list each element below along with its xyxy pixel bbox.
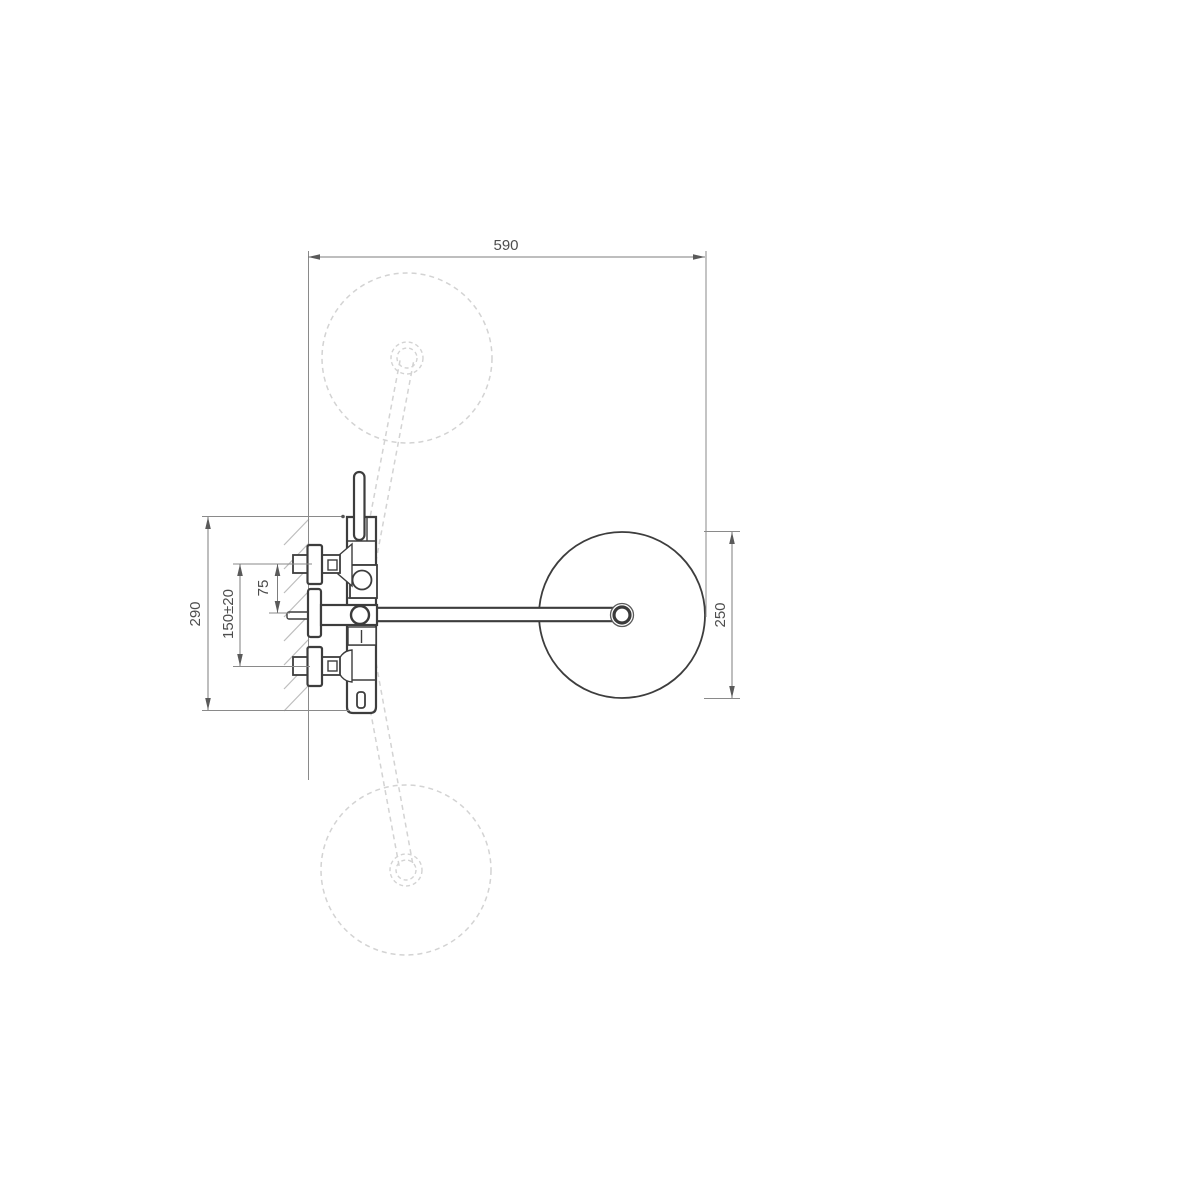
dim-label-75: 75 <box>255 580 272 597</box>
dimension-75: 75 <box>255 564 290 613</box>
dim-label-590: 590 <box>493 237 518 254</box>
phantom-showerhead-up <box>322 273 492 443</box>
drawing-canvas: 590 290 150±20 75 250 <box>0 0 1200 1200</box>
dimension-250: 250 <box>704 532 740 699</box>
dim-label-150: 150±20 <box>220 589 237 639</box>
arm-pivot-hub <box>351 606 369 624</box>
dim-label-250: 250 <box>712 602 729 627</box>
knob-housing <box>350 565 377 598</box>
phantom-showerhead-down <box>321 785 491 955</box>
technical-drawing: 590 290 150±20 75 250 <box>0 0 1200 1200</box>
dim-label-290: 290 <box>187 601 204 626</box>
showerhead-hub <box>611 604 634 627</box>
swivel-arm <box>368 608 614 621</box>
lever-handle <box>354 472 365 540</box>
